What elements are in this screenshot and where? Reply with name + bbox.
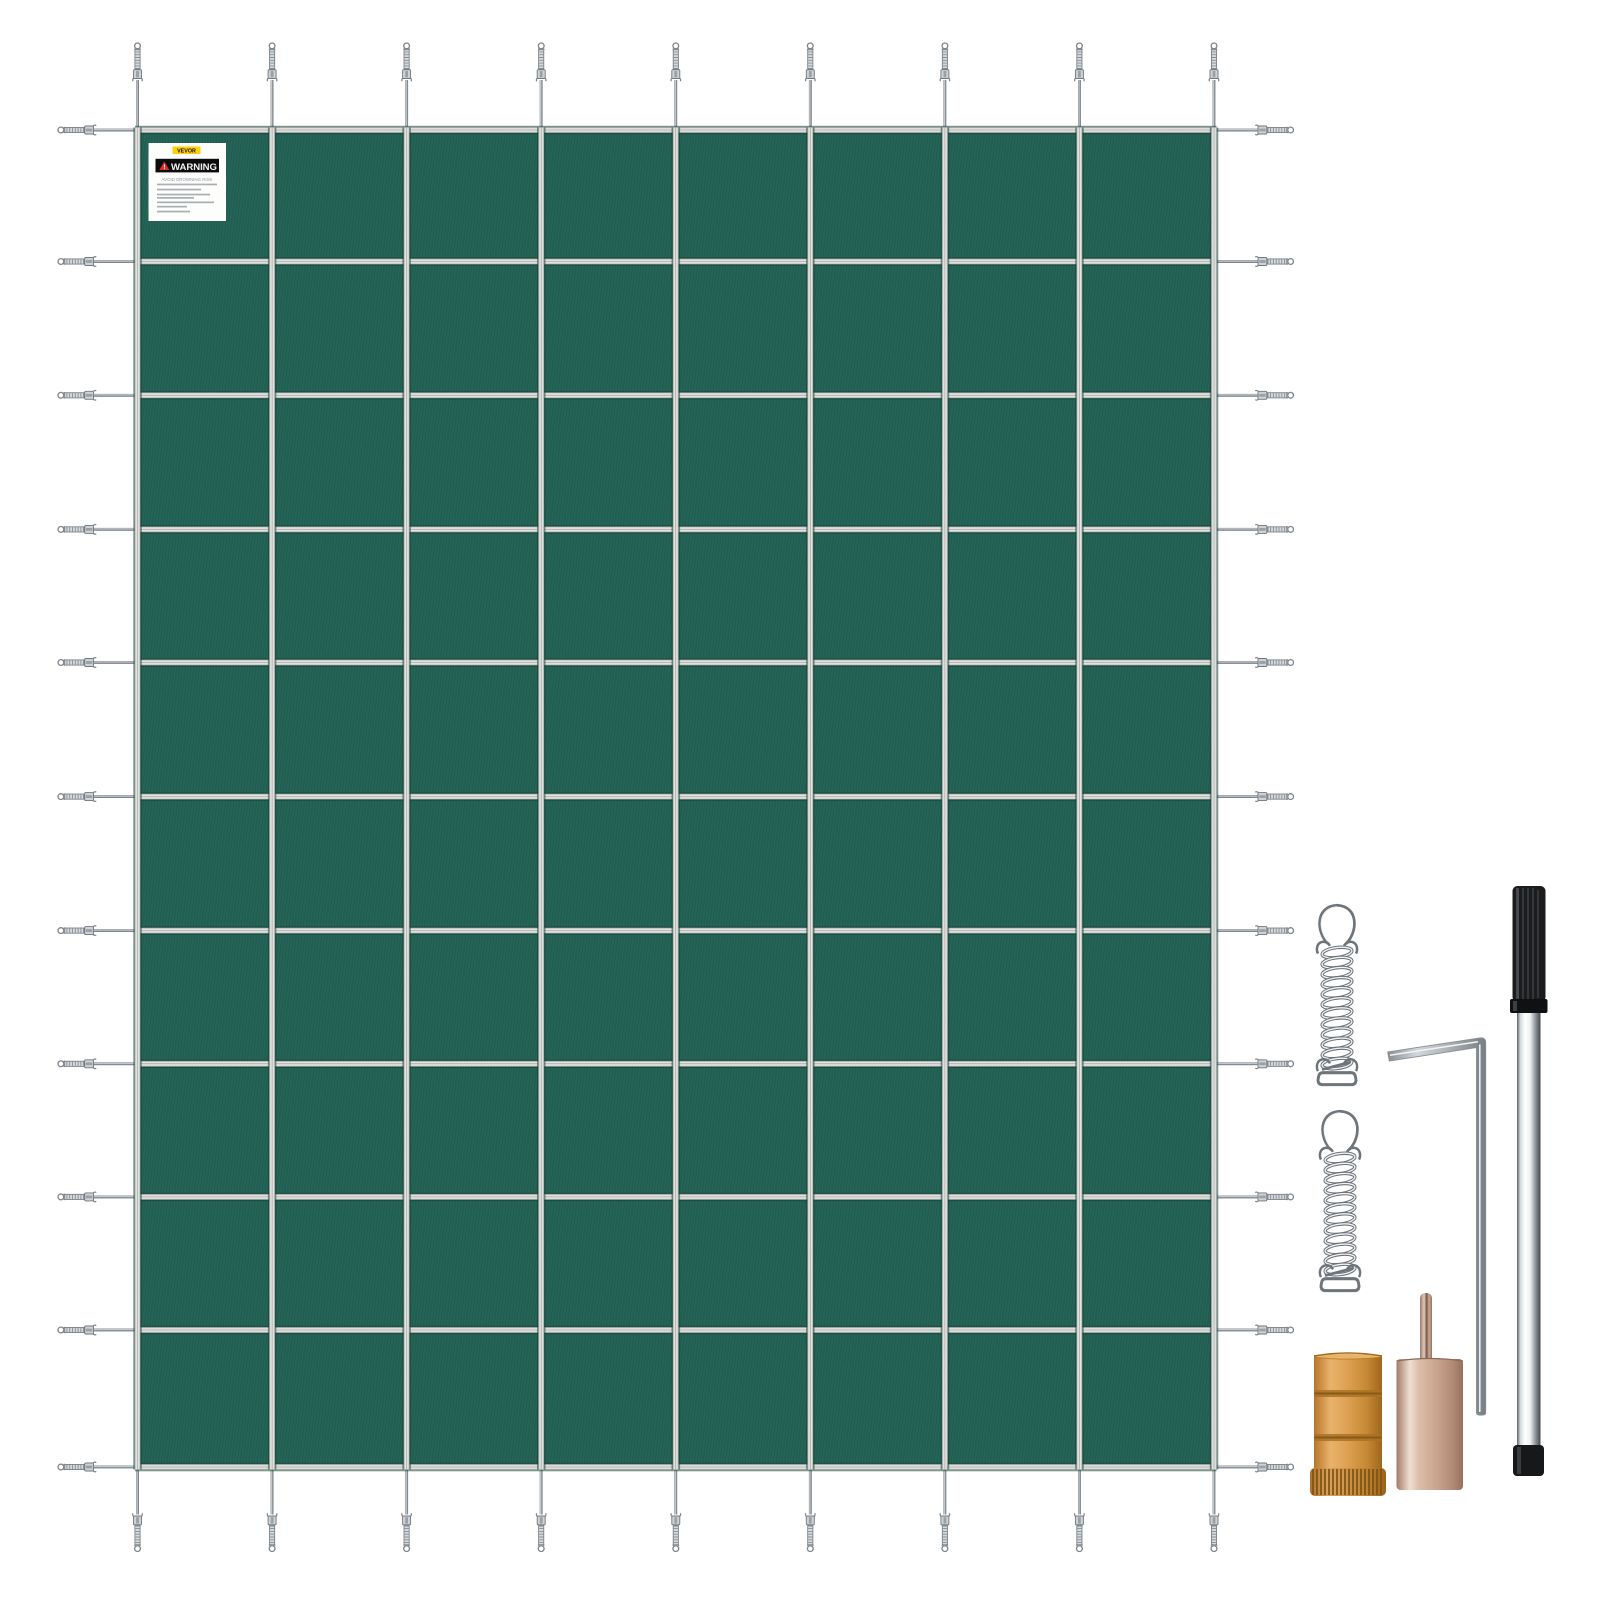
svg-text:VEVOR: VEVOR [177, 148, 196, 154]
svg-text:WARNING: WARNING [171, 162, 217, 173]
svg-text:AVOID DROWNING RISK: AVOID DROWNING RISK [162, 177, 213, 182]
